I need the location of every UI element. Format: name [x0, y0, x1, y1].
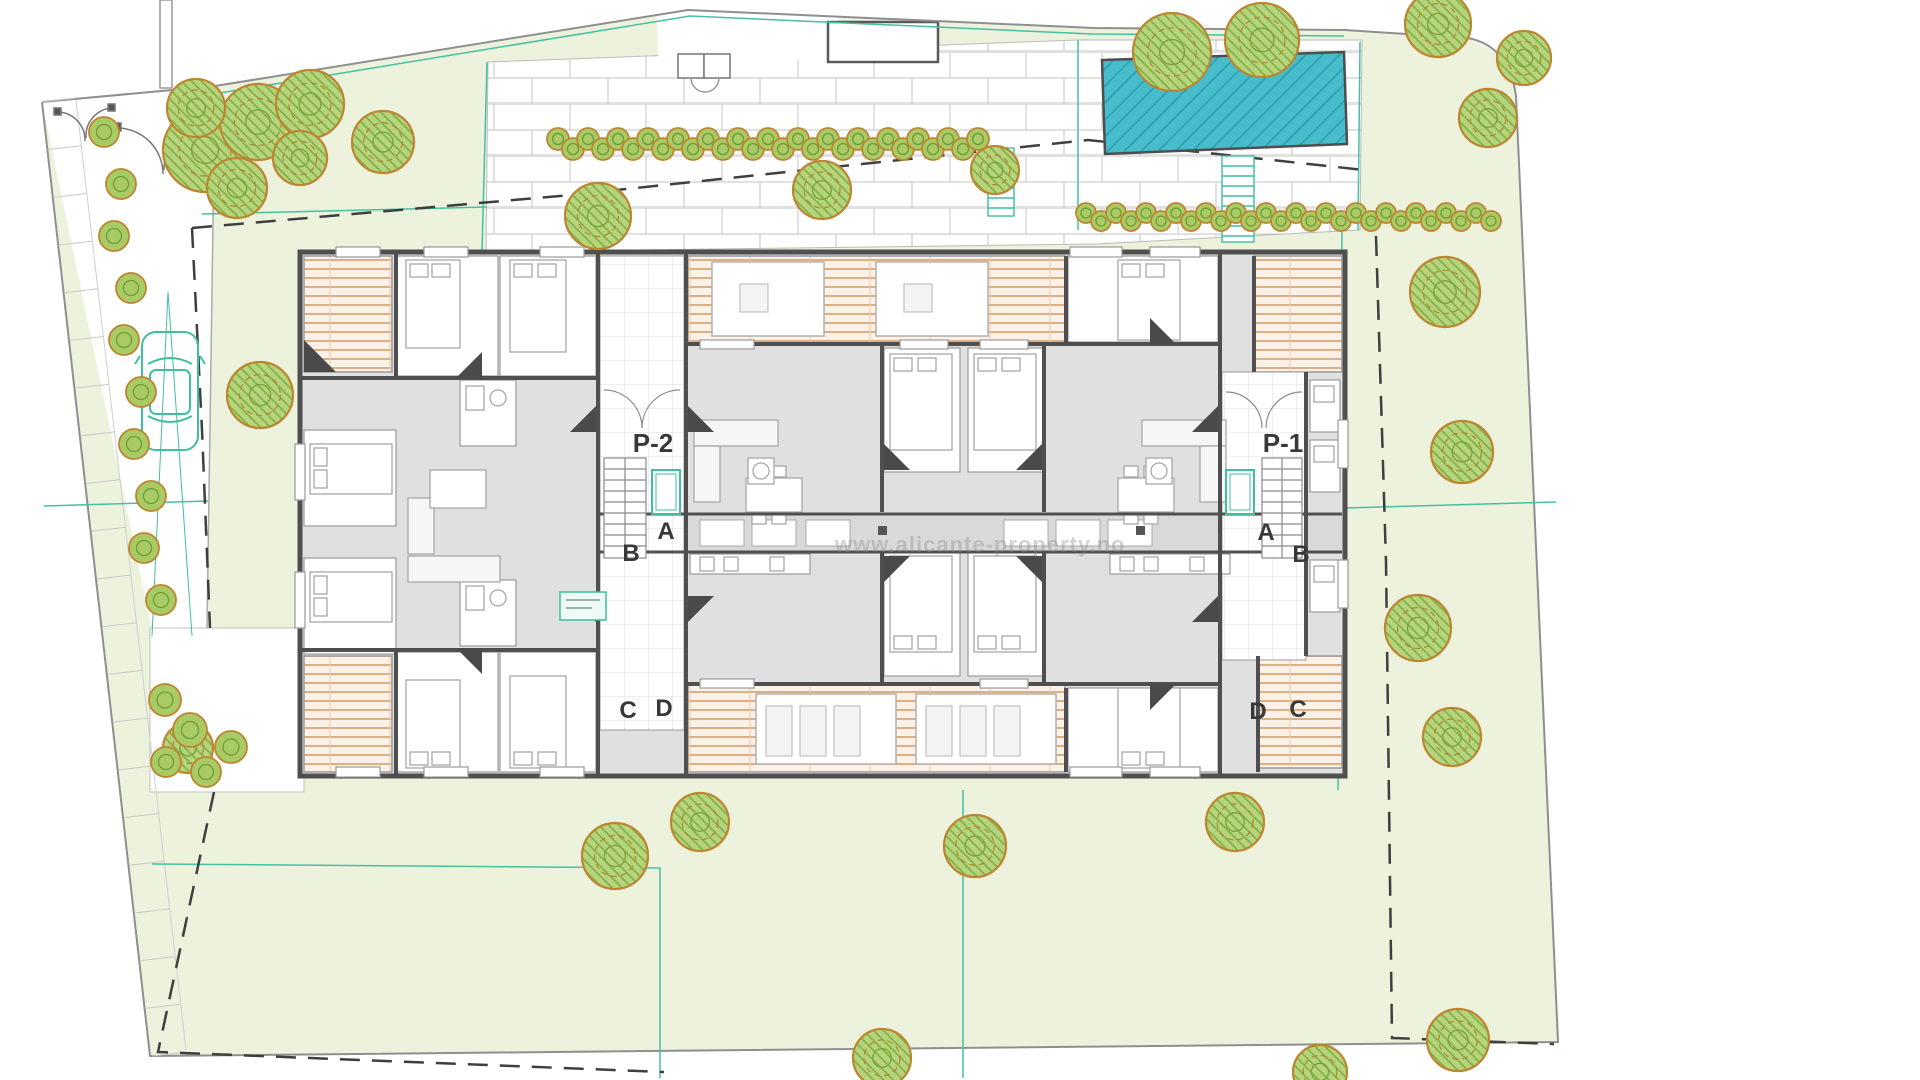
apartment-label-left-c: C	[619, 697, 636, 724]
bush-icon	[109, 325, 139, 355]
apartment-label-right-c: C	[1289, 696, 1306, 723]
elevator-left-icon	[652, 470, 680, 514]
tree-icon	[227, 362, 293, 428]
tree-icon	[352, 111, 414, 173]
watermark: www.alicante-property.no	[834, 532, 1125, 557]
tree-icon	[1385, 595, 1451, 661]
tree-icon	[1497, 31, 1551, 85]
bush-icon	[129, 533, 159, 563]
apartment-label-right-d: D	[1249, 698, 1266, 725]
bush-icon	[89, 117, 119, 147]
bush-icon	[146, 585, 176, 615]
tree-icon	[1206, 793, 1264, 851]
bush-icon	[215, 731, 247, 763]
terrace-bottom-left	[304, 656, 392, 772]
apartment-label-left-a: A	[657, 518, 674, 545]
tree-icon	[1459, 89, 1517, 147]
tree-icon	[1133, 13, 1211, 91]
bush-icon	[116, 273, 146, 303]
entrance-shed	[828, 22, 938, 62]
bush-icon	[119, 429, 149, 459]
tree-icon	[1410, 257, 1480, 327]
bush-icon	[967, 128, 989, 150]
tree-icon	[1293, 1045, 1347, 1080]
tree-icon	[1427, 1009, 1489, 1071]
tree-icon	[1431, 421, 1493, 483]
apartment-label-left-d: D	[655, 695, 672, 722]
apartment-building	[295, 247, 1348, 777]
tree-icon	[582, 823, 648, 889]
architectural-site-plan: P-2 P-1 A B C D A B D C www.alicante-pro…	[0, 0, 1920, 1080]
tree-icon	[1225, 3, 1299, 77]
tree-icon	[671, 793, 729, 851]
bush-icon	[106, 169, 136, 199]
stair-label-p2: P-2	[633, 428, 673, 458]
bush-icon	[126, 377, 156, 407]
tree-icon	[1423, 708, 1481, 766]
tree-icon	[276, 70, 344, 138]
stair-label-p1: P-1	[1263, 428, 1303, 458]
bush-icon	[136, 481, 166, 511]
tree-icon	[565, 183, 631, 249]
bush-icon	[149, 684, 181, 716]
apartment-label-right-a: A	[1257, 519, 1274, 546]
site-plan-drawing: P-2 P-1 A B C D A B D C www.alicante-pro…	[0, 0, 1920, 1080]
tree-icon	[1405, 0, 1471, 57]
tree-icon	[944, 815, 1006, 877]
tree-icon	[793, 161, 851, 219]
tree-icon	[853, 1029, 911, 1080]
apartment-label-left-b: B	[622, 540, 639, 567]
tree-icon	[207, 158, 267, 218]
tree-icon	[971, 146, 1019, 194]
tree-icon	[167, 79, 225, 137]
bush-icon	[191, 757, 221, 787]
apartment-label-right-b: B	[1292, 541, 1309, 568]
technical-room-marker	[560, 592, 606, 620]
bush-icon	[151, 747, 181, 777]
bush-icon	[99, 221, 129, 251]
bush-icon	[1481, 211, 1501, 231]
tree-icon	[273, 131, 327, 185]
bush-icon	[173, 713, 207, 747]
terrace-top-right	[1254, 256, 1342, 372]
elevator-right-icon	[1226, 470, 1254, 514]
